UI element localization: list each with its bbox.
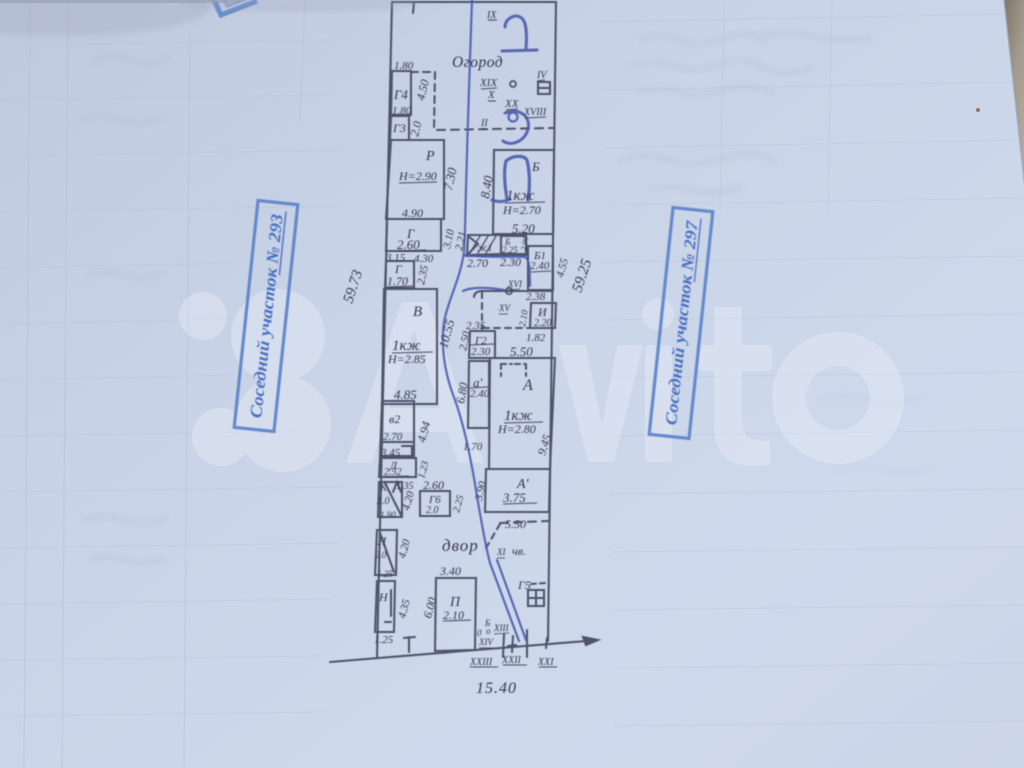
svg-text:1.90: 1.90: [380, 510, 396, 520]
svg-text:XV: XV: [498, 303, 511, 313]
svg-text:2.35: 2.35: [466, 320, 486, 332]
svg-text:ж1: ж1: [477, 242, 493, 254]
svg-text:3.45: 3.45: [380, 447, 401, 459]
svg-text:двор: двор: [442, 536, 479, 555]
svg-text:чв.: чв.: [512, 544, 526, 558]
svg-text:II: II: [480, 118, 488, 129]
svg-text:И: И: [537, 305, 548, 319]
svg-text:В: В: [413, 304, 422, 320]
svg-text:IX: IX: [486, 10, 497, 21]
svg-text:Л: Л: [377, 534, 387, 548]
svg-text:XIII: XIII: [493, 623, 509, 633]
svg-text:1.25: 1.25: [374, 634, 394, 646]
svg-text:3.40: 3.40: [439, 564, 461, 578]
svg-text:2.70: 2.70: [383, 431, 403, 443]
svg-text:2.60: 2.60: [423, 478, 444, 492]
svg-text:Н: Н: [378, 590, 389, 604]
svg-text:1.80: 1.80: [392, 105, 412, 117]
svg-text:2.40: 2.40: [530, 260, 550, 272]
svg-text:Г3: Г3: [392, 121, 406, 135]
svg-text:XVI: XVI: [507, 279, 523, 289]
svg-text:5.50: 5.50: [505, 517, 526, 531]
svg-text:XX: XX: [504, 98, 520, 110]
svg-text:К: К: [379, 482, 388, 494]
svg-text:2.38: 2.38: [526, 291, 546, 303]
svg-text:3.0: 3.0: [376, 496, 390, 507]
svg-text:XIV: XIV: [478, 637, 494, 647]
svg-text:2.30: 2.30: [500, 255, 521, 269]
svg-text:XXIII: XXIII: [469, 657, 493, 668]
svg-text:15.40: 15.40: [476, 680, 517, 697]
svg-text:3.75: 3.75: [502, 490, 526, 505]
svg-text:Н=2.80: Н=2.80: [497, 422, 536, 436]
svg-text:2.60: 2.60: [397, 237, 420, 252]
svg-text:1кж: 1кж: [506, 188, 535, 204]
svg-text:А: А: [522, 377, 533, 394]
svg-text:5.50: 5.50: [510, 344, 533, 359]
svg-text:2.20: 2.20: [534, 318, 552, 329]
svg-text:XXI: XXI: [537, 657, 554, 668]
svg-text:1.25: 1.25: [377, 569, 393, 579]
svg-text:2.30: 2.30: [471, 346, 491, 358]
svg-text:5.20: 5.20: [512, 221, 535, 236]
svg-text:1.80: 1.80: [394, 60, 414, 72]
svg-text:о: о: [486, 626, 491, 636]
svg-text:X: X: [487, 89, 496, 101]
svg-text:2.0: 2.0: [375, 550, 387, 560]
svg-text:XIX: XIX: [479, 77, 498, 89]
svg-text:XVIII: XVIII: [523, 107, 547, 118]
svg-text:XI: XI: [496, 547, 506, 557]
svg-text:Н=2.85: Н=2.85: [387, 352, 426, 366]
svg-text:2.40: 2.40: [470, 388, 490, 400]
svg-text:Огород: Огород: [452, 54, 503, 71]
svg-text:Н=2.90: Н=2.90: [398, 169, 437, 183]
svg-text:Н=2.70: Н=2.70: [502, 203, 541, 217]
svg-text:1.70: 1.70: [463, 441, 483, 453]
svg-text:Г4: Г4: [393, 87, 408, 102]
svg-text:XXII: XXII: [501, 655, 522, 666]
svg-text:Г5: Г5: [517, 578, 531, 592]
svg-text:2.25: 2.25: [502, 245, 518, 255]
svg-text:2.70: 2.70: [467, 256, 488, 270]
svg-text:Р: Р: [425, 149, 435, 164]
svg-text:в2: в2: [389, 412, 400, 426]
svg-text:Б: Б: [531, 159, 540, 174]
svg-text:4.85: 4.85: [394, 387, 417, 402]
svg-text:4.30: 4.30: [414, 253, 434, 265]
svg-text:1.82: 1.82: [526, 332, 546, 344]
svg-text:2.0: 2.0: [426, 505, 439, 516]
svg-text:4.90: 4.90: [402, 206, 423, 220]
